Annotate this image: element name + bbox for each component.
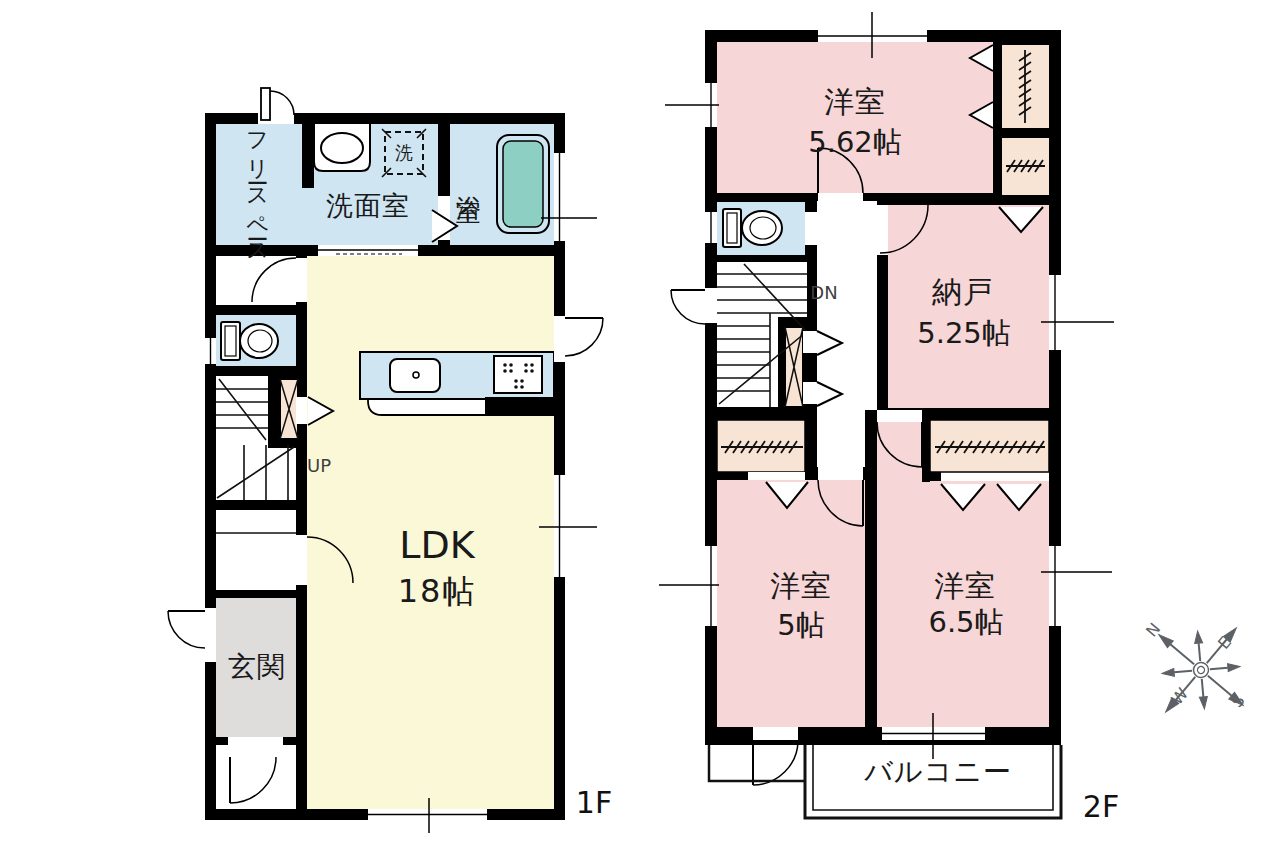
kitchen-stove [494,356,542,393]
floor1-plan [168,88,603,833]
compass-rose: N E S W [1110,582,1280,750]
floorplan-drawing: N E S W [0,0,1280,853]
kitchen-wall-stub [485,397,554,415]
f2-closet-wall [922,408,930,482]
room-storage-525 [888,205,1049,408]
room-genkan [216,598,296,737]
compass-south-label: S [1228,691,1249,711]
room-bedroom-562 [717,42,993,193]
f1-hall-lower [216,510,296,590]
floor2-plan [659,12,1114,818]
f2-hall-lower [817,410,865,467]
f1-partition-wall [302,124,314,188]
room-ldk [307,256,554,809]
f2-hall-upper [817,201,877,410]
kitchen-sink [390,359,440,392]
floorplan-canvas: N E S W フリースペース 洗面室 洗 浴室 LDK 18帖 玄関 UP 1… [0,0,1280,853]
toilet-fixture-1f [221,322,278,360]
f1-hall-upper [216,256,296,305]
f1-entry-closet-area [216,745,296,809]
f1-kitchen [360,352,554,415]
room-bedroom-5 [717,480,865,727]
balcony-outline [709,745,1061,818]
toilet-fixture-2f [723,209,782,247]
f2-closet-opening [941,472,1049,481]
washbasin [314,124,370,171]
closet-left-opening [748,472,805,480]
